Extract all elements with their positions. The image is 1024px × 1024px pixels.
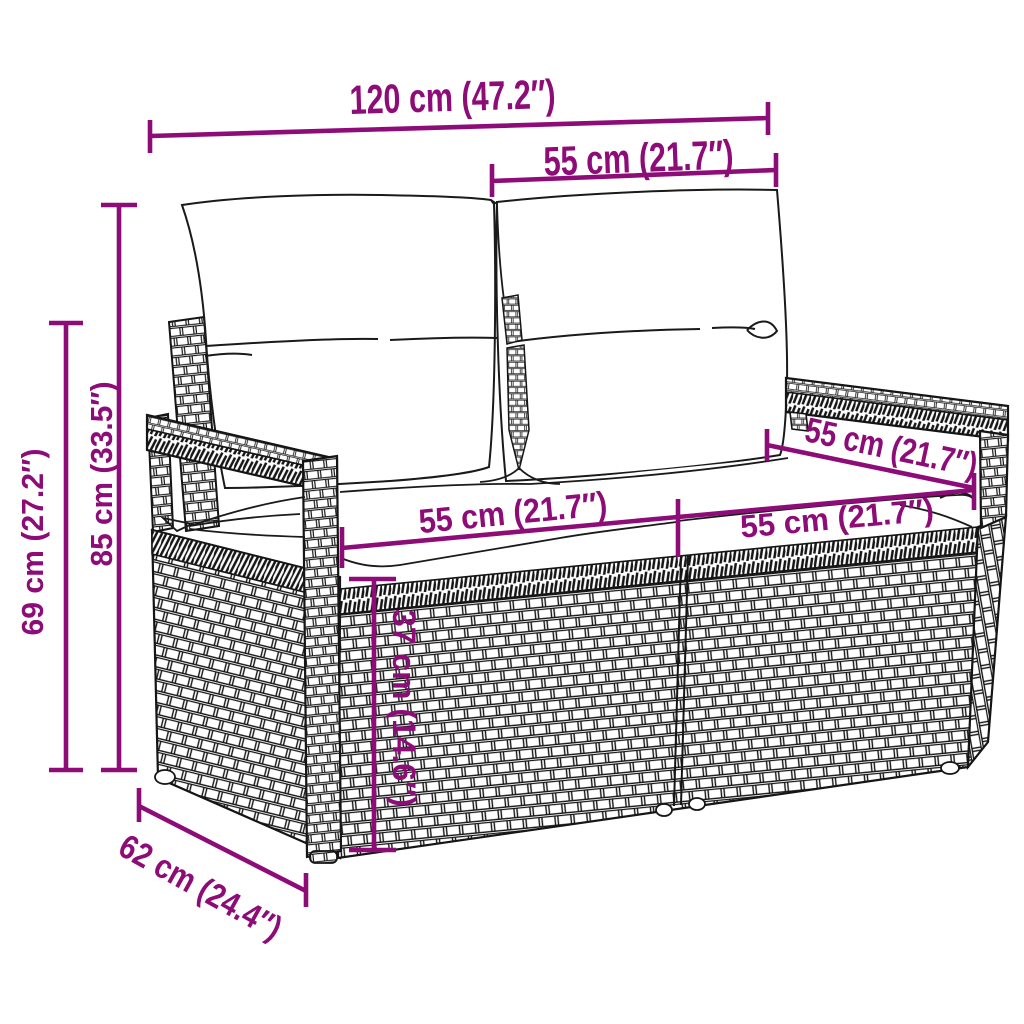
svg-text:62 cm (24.4″): 62 cm (24.4″) — [112, 827, 288, 948]
svg-text:85 cm (33.5″): 85 cm (33.5″) — [84, 382, 119, 567]
svg-text:120 cm (47.2″): 120 cm (47.2″) — [349, 71, 556, 123]
svg-text:55 cm (21.7″): 55 cm (21.7″) — [543, 131, 735, 184]
svg-text:37 cm (14.6″): 37 cm (14.6″) — [386, 609, 422, 807]
svg-text:69 cm (27.2″): 69 cm (27.2″) — [15, 449, 50, 636]
